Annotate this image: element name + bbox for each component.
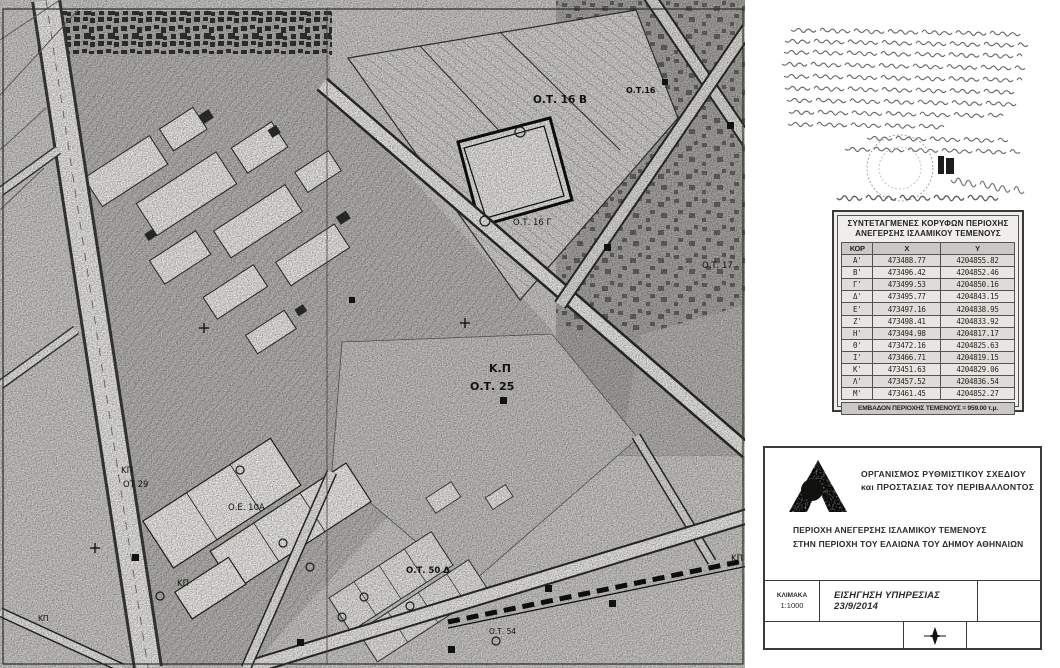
area-total: ΕΜΒΑΔΟΝ ΠΕΡΙΟΧΗΣ ΤΕΜΕΝΟΥΣ = 959.00 τ.μ. (841, 402, 1015, 415)
table-row: Α'473488.774204855.82 (842, 255, 1015, 267)
table-cell: Κ' (842, 363, 873, 375)
handwriting-stroke (784, 50, 1022, 58)
handwriting-stroke (951, 178, 1024, 193)
table-cell: Ζ' (842, 315, 873, 327)
handwriting-stroke (791, 28, 1024, 36)
annotation-panel: ΣΥΝΤΕΤΑΓΜΕΝΕΣ ΚΟΡΥΦΩΝ ΠΕΡΙΟΧΗΣ ΑΝΕΓΕΡΣΗΣ… (745, 0, 1060, 668)
table-cell: 473457.52 (873, 376, 940, 388)
table-cell: 473488.77 (873, 255, 940, 267)
table-cell: Δ' (842, 291, 873, 303)
stamp-dark-mark (946, 158, 954, 174)
table-row: Θ'473472.164204825.63 (842, 339, 1015, 351)
table-cell: Μ' (842, 388, 873, 400)
table-cell: Ι' (842, 351, 873, 363)
table-row: Κ'473451.634204829.06 (842, 363, 1015, 375)
compass-cell (903, 622, 967, 650)
title-block: ΟΡΓΑΝΙΣΜΟΣ ΡΥΘΜΙΣΤΙΚΟΥ ΣΧΕΔΙΟΥ και ΠΡΟΣΤ… (763, 446, 1042, 650)
table-cell: Γ' (842, 279, 873, 291)
title-block-header: ΟΡΓΑΝΙΣΜΟΣ ΡΥΘΜΙΣΤΙΚΟΥ ΣΧΕΔΙΟΥ και ΠΡΟΣΤ… (765, 448, 1040, 581)
handwriting-stroke (784, 74, 1022, 82)
table-cell: Α' (842, 255, 873, 267)
table-cell: 4204817.17 (940, 327, 1014, 339)
scale-cell: ΚΛΙΜΑΚΑ 1:1000 (765, 581, 820, 621)
table-cell: 473461.45 (873, 388, 940, 400)
handwriting-stroke (782, 62, 1025, 70)
handwritten-note (755, 10, 1055, 210)
table-cell: 4204819.15 (940, 351, 1014, 363)
round-stamp-icon (879, 147, 921, 189)
north-star-icon (924, 627, 946, 645)
handwriting-stroke (789, 110, 1003, 117)
table-row: Γ'473499.534204850.16 (842, 279, 1015, 291)
coordinates-table: ΣΥΝΤΕΤΑΓΜΕΝΕΣ ΚΟΡΥΦΩΝ ΠΕΡΙΟΧΗΣ ΑΝΕΓΕΡΣΗΣ… (832, 210, 1024, 412)
coordinates-grid: ΚΟΡΧΥ Α'473488.774204855.82Β'473496.4242… (841, 242, 1015, 400)
drawing-subject: ΠΕΡΙΟΧΗ ΑΝΕΓΕΡΣΗΣ ΙΣΛΑΜΙΚΟΥ ΤΕΜΕΝΟΥΣ ΣΤΗ… (793, 524, 1023, 552)
document-page: Ο.Τ. 16 ΒΟ.Τ.16Ο.Τ. 16 ΓΟ.Τ. 17Κ.ΠΟ.Τ. 2… (0, 0, 1060, 668)
column-header: Υ (940, 243, 1014, 255)
table-cell: 4204825.63 (940, 339, 1014, 351)
table-row: Λ'473457.524204836.54 (842, 376, 1015, 388)
table-cell: 473498.41 (873, 315, 940, 327)
table-cell: 4204838.95 (940, 303, 1014, 315)
table-cell: Ε' (842, 303, 873, 315)
table-row: Μ'473461.454204852.27 (842, 388, 1015, 400)
table-cell: 4204850.16 (940, 279, 1014, 291)
table-cell: 4204852.46 (940, 267, 1014, 279)
table-row: Η'473494.984204817.17 (842, 327, 1015, 339)
table-cell: Β' (842, 267, 873, 279)
table-cell: 4204843.15 (940, 291, 1014, 303)
table-cell: 473497.16 (873, 303, 940, 315)
table-cell: 473466.71 (873, 351, 940, 363)
scale-label: ΚΛΙΜΑΚΑ (777, 592, 807, 599)
table-cell: 473496.42 (873, 267, 940, 279)
table-cell: 4204855.82 (940, 255, 1014, 267)
halftone-grain (0, 0, 745, 668)
table-cell: 4204852.27 (940, 388, 1014, 400)
handwriting-stroke (845, 147, 1020, 154)
map-canvas: Ο.Τ. 16 ΒΟ.Τ.16Ο.Τ. 16 ΓΟ.Τ. 17Κ.ΠΟ.Τ. 2… (0, 0, 745, 668)
table-cell: 473472.16 (873, 339, 940, 351)
table-row: Ι'473466.714204819.15 (842, 351, 1015, 363)
table-cell: 4204836.54 (940, 376, 1014, 388)
empty-cell (978, 581, 1040, 621)
submission-cell: ΕΙΣΗΓΗΣΗ ΥΠΗΡΕΣΙΑΣ 23/9/2014 (820, 581, 978, 621)
table-cell: 473499.53 (873, 279, 940, 291)
handwriting-stroke (788, 122, 944, 129)
table-cell: 473451.63 (873, 363, 940, 375)
handwriting-stroke (837, 195, 1002, 200)
table-cell: Θ' (842, 339, 873, 351)
table-row: Ε'473497.164204838.95 (842, 303, 1015, 315)
table-row: Ζ'473498.414204833.92 (842, 315, 1015, 327)
table-cell: Λ' (842, 376, 873, 388)
handwriting-stroke (785, 86, 1018, 94)
handwriting-stroke (867, 136, 1008, 142)
title-block-bottomrow (765, 622, 1040, 650)
coordinates-table-title: ΣΥΝΤΕΤΑΓΜΕΝΕΣ ΚΟΡΥΦΩΝ ΠΕΡΙΟΧΗΣ ΑΝΕΓΕΡΣΗΣ… (841, 218, 1015, 242)
table-row: Β'473496.424204852.46 (842, 267, 1015, 279)
table-row: Δ'473495.774204843.15 (842, 291, 1015, 303)
cadastral-map: Ο.Τ. 16 ΒΟ.Τ.16Ο.Τ. 16 ΓΟ.Τ. 17Κ.ΠΟ.Τ. 2… (0, 0, 745, 668)
table-cell: Η' (842, 327, 873, 339)
title-block-midrow: ΚΛΙΜΑΚΑ 1:1000 ΕΙΣΗΓΗΣΗ ΥΠΗΡΕΣΙΑΣ 23/9/2… (765, 581, 1040, 622)
column-header: Χ (873, 243, 940, 255)
column-header: ΚΟΡ (842, 243, 873, 255)
stamp-dark-mark (938, 156, 944, 174)
table-cell: 473494.98 (873, 327, 940, 339)
orsa-triangle-logo (787, 458, 849, 516)
table-cell: 4204833.92 (940, 315, 1014, 327)
handwriting-stroke (785, 39, 1028, 47)
round-stamp-icon (867, 135, 933, 201)
organization-name: ΟΡΓΑΝΙΣΜΟΣ ΡΥΘΜΙΣΤΙΚΟΥ ΣΧΕΔΙΟΥ και ΠΡΟΣΤ… (861, 468, 1034, 494)
handwriting-stroke (787, 98, 1020, 106)
table-cell: 4204829.06 (940, 363, 1014, 375)
table-cell: 473495.77 (873, 291, 940, 303)
scale-value: 1:1000 (781, 601, 804, 610)
